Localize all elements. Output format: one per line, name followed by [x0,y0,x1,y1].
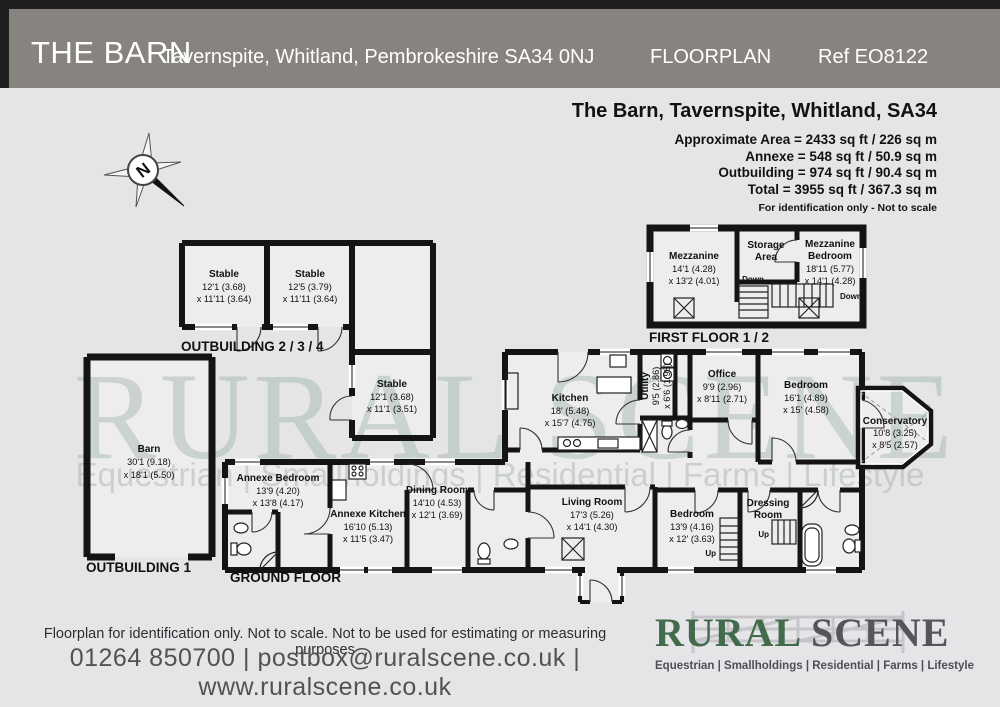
floorplan-page: THE BARN Tavernspite, Whitland, Pembroke… [0,0,1000,707]
room-name: Bedroom [670,509,714,520]
room-name: Stable [377,379,407,390]
sink-icon [234,523,248,533]
room-name: Dining Room [406,485,468,496]
room-dim: 9'5 (2.86) [651,367,661,406]
floorplan-svg: RURAL SCENE Equestrian | Smallholdings |… [0,0,1000,707]
toilet-icon [843,539,855,553]
room-name: Room [754,510,782,521]
room-dim: x 8'5 (2.57) [872,440,918,450]
room-dim: x 11'11 (3.64) [283,294,338,304]
room-dim: 14'10 (4.53) [413,498,462,508]
room-dim: 10'8 (3.25) [873,428,917,438]
toilet-icon [478,543,490,559]
room-name: Storage [747,240,785,251]
logo-word-rural: RURAL [655,610,800,655]
ground-floor-label: GROUND FLOOR [230,570,341,585]
toilet-icon [237,543,251,555]
first-floor-label: FIRST FLOOR 1 / 2 [649,330,769,345]
room-name: Kitchen [552,393,589,404]
room-dim: x 11'5 (3.47) [343,534,393,544]
room-dim: x 11'1 (3.51) [367,404,417,414]
room-dim: 18' (5.48) [551,406,590,416]
compass-icon: N [104,133,184,207]
room-dim: 18'11 (5.77) [806,264,854,274]
room-dim: x 12' (3.63) [669,534,715,544]
stairs-down-label: Down [840,292,862,301]
room-dim: 12'1 (3.68) [370,392,414,402]
agency-logo: RURAL SCENE Equestrian | Smallholdings |… [655,603,945,683]
stairs-up-label: Up [758,530,769,539]
logo-tagline: Equestrian | Smallholdings | Residential… [655,660,945,672]
sink-icon [504,539,518,549]
room-dim: x 8'11 (2.71) [697,394,747,404]
room-dim: 12'5 (3.79) [288,282,332,292]
room-dim: 14'1 (4.28) [672,264,716,274]
room-name: Mezzanine [669,251,719,262]
room-name: Mezzanine [805,239,855,250]
room-dim: x 11'11 (3.64) [197,294,252,304]
room-name: Office [708,369,737,380]
sink-icon [845,525,859,535]
stairs-up-label: Up [705,549,716,558]
room-dim: x 14'1 (4.30) [567,522,618,532]
room-name: Dressing [747,498,790,509]
room-name: Conservatory [863,416,928,427]
room-name: Living Room [562,497,623,508]
room-dim: 9'9 (2.96) [703,382,742,392]
outbuilding-1-label: OUTBUILDING 1 [86,560,191,575]
room-name: Bedroom [784,380,828,391]
outbuilding-234-label: OUTBUILDING 2 / 3 / 4 [181,339,324,354]
room-dim: x 18'1 (5.50) [124,470,175,480]
room-dim: 12'1 (3.68) [202,282,246,292]
room-dim: 13'9 (4.16) [670,522,714,532]
room-name: Barn [138,444,161,455]
room-dim: 16'10 (5.13) [344,522,393,532]
room-label-dining-room: Dining Room 14'10 (4.53) x 12'1 (3.69) [406,485,468,520]
room-dim: x 6'6 (1.98) [662,363,672,409]
room-dim: 30'1 (9.18) [127,457,171,467]
stairs-down-label: Down [742,275,764,284]
room-label-bedroom-main: Bedroom 16'1 (4.89) x 15' (4.58) [783,380,829,415]
room-dim: x 13'2 (4.01) [669,276,720,286]
room-name: Utility [640,372,651,400]
room-dim: 13'9 (4.20) [256,486,300,496]
room-dim: x 15'7 (4.75) [545,418,596,428]
room-label-living-room: Living Room 17'3 (5.26) x 14'1 (4.30) [562,497,623,532]
room-dim: x 14'1 (4.28) [805,276,856,286]
room-name: Area [755,252,778,263]
footer-contact: 01264 850700 | postbox@ruralscene.co.uk … [15,644,635,702]
room-label-mezzanine: Mezzanine 14'1 (4.28) x 13'2 (4.01) [669,251,720,286]
logo-wordmark: RURAL SCENE [655,609,945,656]
toilet-icon [662,425,672,439]
room-dim: x 15' (4.58) [783,405,829,415]
room-dim: x 12'1 (3.69) [412,510,463,520]
room-name: Annexe Bedroom [237,473,320,484]
room-name: Stable [209,269,239,280]
room-name: Annexe Kitchen [330,509,406,520]
room-label-bedroom2: Bedroom 13'9 (4.16) x 12' (3.63) [669,509,715,544]
room-name: Stable [295,269,325,280]
sink-icon [676,420,688,429]
room-dim: 17'3 (5.26) [570,510,614,520]
room-label-kitchen: Kitchen 18' (5.48) x 15'7 (4.75) [545,393,596,428]
room-dim: 16'1 (4.89) [784,393,828,403]
room-dim: x 13'8 (4.17) [253,498,304,508]
logo-word-scene: SCENE [800,610,949,655]
room-name: Bedroom [808,251,852,262]
